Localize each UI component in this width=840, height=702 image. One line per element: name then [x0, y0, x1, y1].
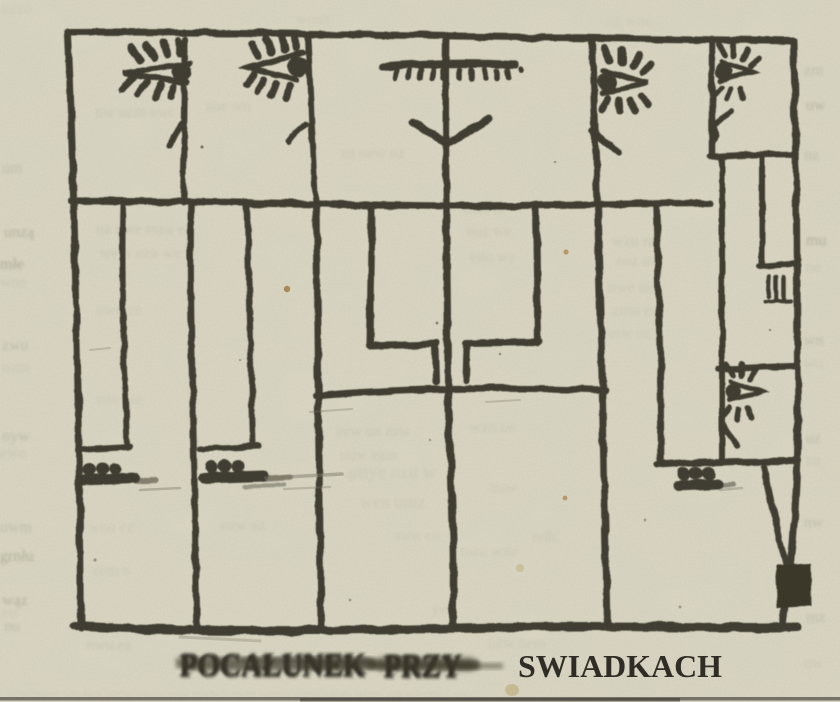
- svg-text:ewn: ewn: [0, 445, 27, 462]
- svg-text:wn: wn: [804, 332, 824, 349]
- svg-text:oz wnu: oz wnu: [606, 13, 653, 30]
- svg-text:uz: uz: [806, 430, 821, 447]
- svg-text:zn: zn: [806, 452, 821, 469]
- svg-text:mzu wne: mzu wne: [460, 543, 518, 560]
- svg-text:uw: uw: [804, 655, 824, 672]
- svg-text:zew un mw: zew un mw: [336, 423, 410, 440]
- svg-text:SWIADKACH: SWIADKACH: [518, 648, 722, 684]
- svg-text:zn uew nz: zn uew nz: [340, 145, 405, 162]
- svg-text:uew nz: uew nz: [606, 325, 652, 342]
- svg-text:zem u: zem u: [92, 562, 131, 579]
- svg-text:wzn ue: wzn ue: [470, 419, 516, 436]
- svg-text:zmu en: zmu en: [612, 302, 659, 319]
- svg-text:nz: nz: [804, 147, 819, 164]
- svg-text:wne: wne: [0, 274, 27, 291]
- svg-text:ne: ne: [806, 259, 821, 276]
- svg-text:uczn: uczn: [2, 1, 32, 18]
- svg-text:nwe uz: nwe uz: [608, 279, 654, 296]
- svg-text:um: um: [2, 160, 23, 177]
- svg-text:ndb.: ndb.: [532, 529, 560, 546]
- svg-text:zue wn: zue wn: [205, 98, 251, 115]
- svg-text:ąmye nzu w: ąmye nzu w: [345, 462, 437, 483]
- svg-text:enw uz: enw uz: [220, 517, 266, 534]
- svg-text:nuz we: nuz we: [466, 223, 512, 240]
- svg-text:unzą: unzą: [4, 224, 35, 241]
- svg-text:uzm: uzm: [2, 359, 30, 376]
- svg-text:nw uzm ewr: nw uzm ewr: [95, 104, 175, 121]
- svg-text:wem uzn we: wem uzn we: [100, 245, 181, 262]
- svg-text:nyw: nyw: [2, 428, 30, 445]
- svg-text:wnu ez: wnu ez: [88, 519, 134, 536]
- svg-text:uz nwe mzu en: uz nwe mzu en: [96, 221, 192, 238]
- svg-text:wu: wu: [804, 355, 824, 372]
- svg-text:zm: zm: [804, 62, 824, 79]
- svg-text:uw: uw: [806, 97, 826, 114]
- svg-text:nuw ezm: nuw ezm: [340, 447, 399, 464]
- svg-text:wzu ne: wzu ne: [612, 233, 658, 250]
- svg-text:zuw en: zuw en: [395, 527, 441, 544]
- svg-text:grnłu: grnłu: [0, 548, 34, 565]
- svg-text:nw: nw: [804, 514, 824, 531]
- svg-text:nwu ez: nwu ez: [86, 637, 132, 654]
- svg-text:uwn ze: uwn ze: [96, 302, 142, 319]
- svg-text:mz: mz: [806, 609, 826, 626]
- svg-text:uwm: uwm: [0, 519, 33, 536]
- svg-text:wosn: wosn: [296, 11, 330, 28]
- svg-text:mu: mu: [806, 232, 826, 249]
- svg-text:zwu: zwu: [2, 337, 29, 354]
- svg-text:enu wz: enu wz: [470, 249, 516, 266]
- svg-text:zu: zu: [2, 604, 17, 621]
- svg-text:uzn we: uzn we: [96, 391, 142, 408]
- svg-text:młe: młe: [0, 256, 24, 273]
- svg-text:zuw: zuw: [490, 479, 517, 496]
- svg-text:wen umz: wen umz: [360, 492, 425, 512]
